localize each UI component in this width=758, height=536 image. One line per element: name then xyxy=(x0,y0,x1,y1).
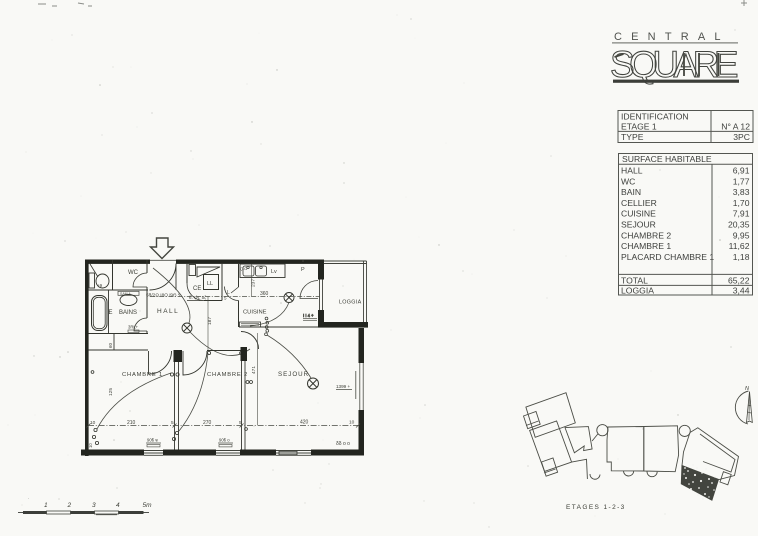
svg-text:60: 60 xyxy=(108,342,113,348)
svg-text:BAIN: BAIN xyxy=(621,187,641,197)
svg-text:10: 10 xyxy=(349,420,355,426)
svg-text:CENTRAL: CENTRAL xyxy=(614,31,730,43)
svg-text:TOTAL: TOTAL xyxy=(621,275,648,285)
svg-text:90ϐ ѡ: 90ϐ ѡ xyxy=(147,438,158,443)
svg-text:.: . xyxy=(28,495,29,501)
svg-text:125: 125 xyxy=(108,388,114,396)
svg-text:3,83: 3,83 xyxy=(733,187,750,197)
svg-text:N: N xyxy=(745,386,749,392)
svg-text:3: 3 xyxy=(92,502,96,509)
svg-text:BAINS: BAINS xyxy=(119,310,137,316)
svg-text:WC: WC xyxy=(621,176,635,186)
svg-text:HALL: HALL xyxy=(157,308,179,315)
svg-text:CHAMBRE 1: CHAMBRE 1 xyxy=(122,372,163,378)
svg-text:5θ/2Ω Ι8Ο ϊ9Ϭ ϟ: 5θ/2Ω Ι8Ο ϊ9Ϭ ϟ xyxy=(146,293,181,299)
svg-text:5: 5 xyxy=(239,420,242,426)
svg-text:HALL: HALL xyxy=(621,166,643,176)
svg-text:IDENTIFICATION: IDENTIFICATION xyxy=(621,112,689,122)
svg-text:3RL+: 3RL+ xyxy=(128,325,139,330)
svg-text:SURFACE HABITABLE: SURFACE HABITABLE xyxy=(622,154,712,164)
svg-text:δδ ο ο: δδ ο ο xyxy=(336,441,350,447)
svg-text:6,91: 6,91 xyxy=(733,166,750,176)
svg-text:10: 10 xyxy=(88,443,93,448)
svg-text:CE: CE xyxy=(193,286,201,292)
svg-text:ETAGES 1-2-3: ETAGES 1-2-3 xyxy=(566,504,626,511)
svg-text:L: L xyxy=(227,290,230,296)
svg-text:210: 210 xyxy=(127,420,136,426)
svg-text:7,91: 7,91 xyxy=(733,209,750,219)
svg-text:5: 5 xyxy=(171,420,174,426)
svg-text:2: 2 xyxy=(67,502,72,509)
svg-text:237: 237 xyxy=(251,279,257,287)
svg-text:ETAGE 1: ETAGE 1 xyxy=(621,121,657,131)
svg-text:CUISINE: CUISINE xyxy=(621,209,656,219)
svg-text:1: 1 xyxy=(44,502,48,509)
svg-text:LOGGIA: LOGGIA xyxy=(621,286,654,296)
svg-text:N° A 12: N° A 12 xyxy=(721,121,750,131)
svg-text:3,44: 3,44 xyxy=(733,286,750,296)
svg-text:1,70: 1,70 xyxy=(733,198,750,208)
svg-text:P: P xyxy=(301,267,305,273)
svg-text:SEJOUR: SEJOUR xyxy=(278,371,309,378)
svg-text:1,77: 1,77 xyxy=(733,176,750,186)
svg-text:3PC: 3PC xyxy=(733,132,750,142)
svg-text:ϐ. ςϞ. 5ζ: ϐ. ςϞ. 5ζ xyxy=(189,295,206,300)
svg-text:LOGGIA: LOGGIA xyxy=(339,300,362,306)
svg-text:90ϐ ο: 90ϐ ο xyxy=(219,438,230,443)
svg-text:SQUARE: SQUARE xyxy=(610,44,739,85)
svg-text:420: 420 xyxy=(300,420,309,426)
svg-text:4: 4 xyxy=(116,502,120,509)
svg-text:Lv: Lv xyxy=(271,269,277,275)
svg-text:+9: +9 xyxy=(97,283,103,288)
svg-text:65,22: 65,22 xyxy=(728,275,750,285)
svg-text:471: 471 xyxy=(251,366,257,374)
svg-text:CELLIER: CELLIER xyxy=(621,198,657,208)
svg-text:Ϙ.Ω: Ϙ.Ω xyxy=(240,266,247,271)
svg-text:11,62: 11,62 xyxy=(729,241,750,251)
svg-text:TYPE: TYPE xyxy=(621,132,644,142)
svg-text:CHAMBRE 2: CHAMBRE 2 xyxy=(621,230,671,240)
svg-text:E: E xyxy=(109,310,113,316)
svg-text:CHAMBRE 1: CHAMBRE 1 xyxy=(621,241,671,251)
svg-text:LL: LL xyxy=(207,281,213,287)
svg-text:1,18: 1,18 xyxy=(733,252,750,262)
svg-text:WC: WC xyxy=(128,270,139,276)
svg-text:SEJOUR: SEJOUR xyxy=(621,220,656,230)
svg-text:270: 270 xyxy=(203,420,212,426)
svg-text:Ι Ι 4 +: Ι Ι 4 + xyxy=(303,313,314,318)
svg-text:PLACARD CHAMBRE 1: PLACARD CHAMBRE 1 xyxy=(621,252,714,262)
svg-text:20,35: 20,35 xyxy=(728,220,750,230)
svg-text:9,95: 9,95 xyxy=(733,230,750,240)
svg-text:CUISINE: CUISINE xyxy=(243,310,267,316)
svg-text:10: 10 xyxy=(90,420,96,426)
svg-text:187: 187 xyxy=(207,317,213,325)
svg-text:5m: 5m xyxy=(143,502,153,509)
svg-text:1399 +: 1399 + xyxy=(336,384,350,389)
